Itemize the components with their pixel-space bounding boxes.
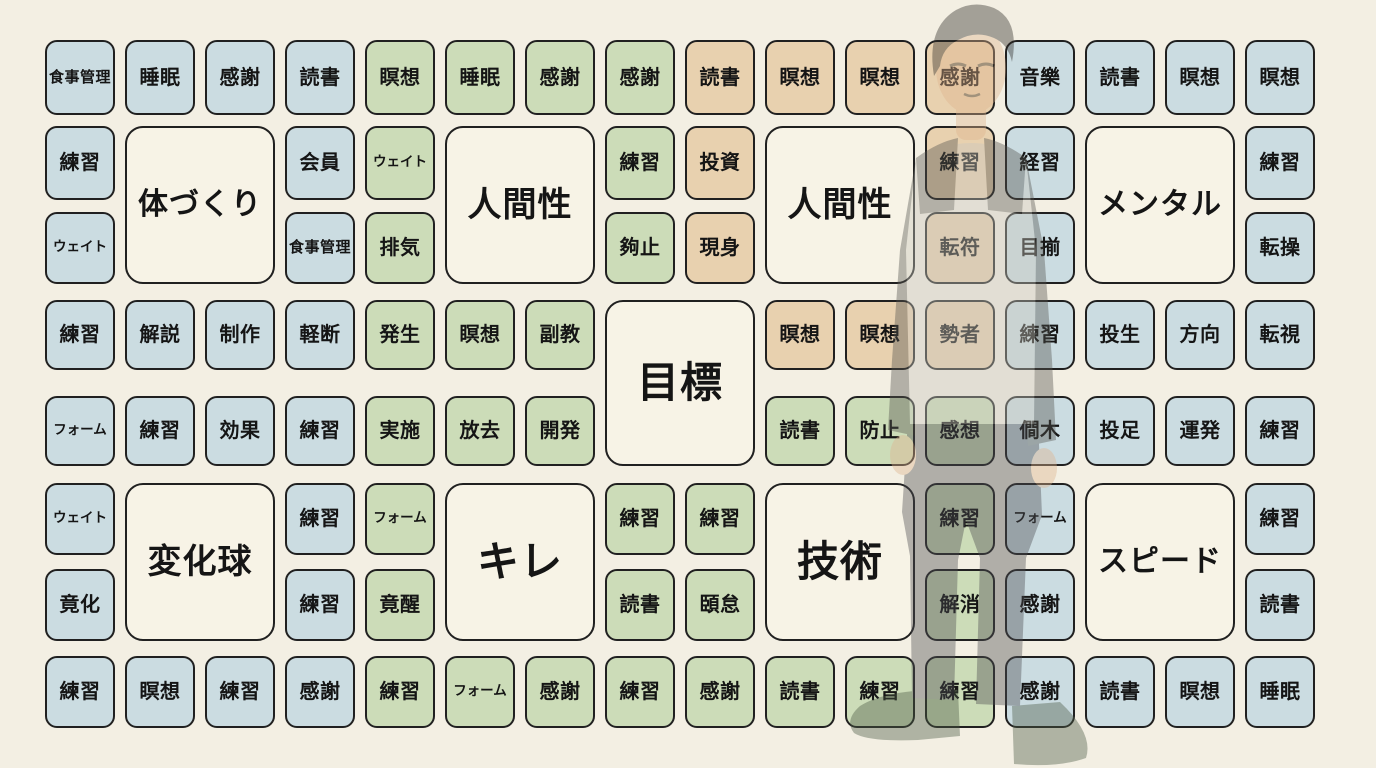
grid-cell: 練習 <box>205 656 275 728</box>
grid-cell: 読書 <box>765 656 835 728</box>
grid-cell: 発生 <box>365 300 435 370</box>
grid-cell: 睡眠 <box>1245 656 1315 728</box>
grid-cell: 練習 <box>1245 126 1315 200</box>
grid-cell: 方向 <box>1165 300 1235 370</box>
grid-cell: 練習 <box>605 126 675 200</box>
grid-cell: 練習 <box>845 656 915 728</box>
grid-cell: 転視 <box>1245 300 1315 370</box>
grid-cell: フォーム <box>365 483 435 555</box>
theme-cell: スピード <box>1085 483 1235 641</box>
grid-cell: 感謝 <box>925 40 995 115</box>
grid-cell: 読書 <box>1085 40 1155 115</box>
grid-cell: ウェイト <box>365 126 435 200</box>
grid-cell: 睡眠 <box>125 40 195 115</box>
grid-cell: 練習 <box>925 656 995 728</box>
grid-cell: 転符 <box>925 212 995 284</box>
grid-cell: 夠止 <box>605 212 675 284</box>
grid-cell: 食事管理 <box>45 40 115 115</box>
grid-cell: 練習 <box>45 300 115 370</box>
grid-cell: 感想 <box>925 396 995 466</box>
grid-cell: 瞑想 <box>1165 40 1235 115</box>
grid-cell: 解消 <box>925 569 995 641</box>
grid-cell: 投生 <box>1085 300 1155 370</box>
theme-cell: 人間性 <box>445 126 595 284</box>
grid-cell: 練習 <box>285 483 355 555</box>
grid-cell: 感謝 <box>1005 569 1075 641</box>
grid-cell: 練習 <box>605 483 675 555</box>
grid-cell: 練習 <box>45 126 115 200</box>
grid-cell: 音樂 <box>1005 40 1075 115</box>
grid-cell: 感謝 <box>525 656 595 728</box>
grid-cell: 瞑想 <box>1245 40 1315 115</box>
theme-cell: 変化球 <box>125 483 275 641</box>
theme-cell: メンタル <box>1085 126 1235 284</box>
grid-cell: 練習 <box>285 569 355 641</box>
grid-cell: 練習 <box>1245 396 1315 466</box>
grid-cell: 竟化 <box>45 569 115 641</box>
grid-cell: フォーム <box>45 396 115 466</box>
grid-cell: 運発 <box>1165 396 1235 466</box>
grid-cell: 効果 <box>205 396 275 466</box>
grid-cell: 瞑想 <box>1165 656 1235 728</box>
grid-cell: 練習 <box>1005 300 1075 370</box>
standing-man-illustration <box>808 0 1108 768</box>
grid-cell: 瞑想 <box>765 300 835 370</box>
grid-cell: 瞑想 <box>845 40 915 115</box>
grid-cell: 投資 <box>685 126 755 200</box>
grid-cell: 読書 <box>1085 656 1155 728</box>
grid-cell: 竟醒 <box>365 569 435 641</box>
grid-cell: 感謝 <box>205 40 275 115</box>
grid-cell: ウェイト <box>45 483 115 555</box>
grid-cell: 現身 <box>685 212 755 284</box>
theme-cell: 人間性 <box>765 126 915 284</box>
grid-cell: 投足 <box>1085 396 1155 466</box>
grid-cell: 練習 <box>125 396 195 466</box>
grid-cell: 練習 <box>925 126 995 200</box>
grid-cell: フォーム <box>445 656 515 728</box>
grid-cell: 会員 <box>285 126 355 200</box>
grid-cell: 開発 <box>525 396 595 466</box>
grid-cell: 睡眠 <box>445 40 515 115</box>
grid-cell: 目揃 <box>1005 212 1075 284</box>
grid-cell: 感謝 <box>605 40 675 115</box>
grid-cell: 練習 <box>1245 483 1315 555</box>
grid-cell: 感謝 <box>525 40 595 115</box>
theme-cell: 技術 <box>765 483 915 641</box>
grid-cell: 防止 <box>845 396 915 466</box>
grid-cell: フォーム <box>1005 483 1075 555</box>
grid-cell: 僴木 <box>1005 396 1075 466</box>
grid-cell: 読書 <box>1245 569 1315 641</box>
grid-cell: 練習 <box>685 483 755 555</box>
grid-cell: 瞑想 <box>365 40 435 115</box>
theme-cell: キレ <box>445 483 595 641</box>
grid-cell: 練習 <box>365 656 435 728</box>
grid-cell: 練習 <box>45 656 115 728</box>
mandala-chart: 食事管理睡眠感謝読書瞑想睡眠感謝感謝読書瞑想瞑想感謝音樂読書瞑想瞑想練習会員ウェ… <box>0 0 1376 768</box>
grid-cell: 練習 <box>605 656 675 728</box>
grid-cell: 瞑想 <box>445 300 515 370</box>
theme-cell: 体づくり <box>125 126 275 284</box>
grid-cell: 感謝 <box>285 656 355 728</box>
grid-cell: 頣怠 <box>685 569 755 641</box>
grid-cell: 勢者 <box>925 300 995 370</box>
grid-cell: 解説 <box>125 300 195 370</box>
grid-cell: 転操 <box>1245 212 1315 284</box>
grid-cell: 感謝 <box>685 656 755 728</box>
grid-cell: 瞑想 <box>765 40 835 115</box>
grid-cell: 制作 <box>205 300 275 370</box>
grid-cell: 読書 <box>685 40 755 115</box>
grid-cell: 経習 <box>1005 126 1075 200</box>
grid-cell: 練習 <box>285 396 355 466</box>
grid-cell: 練習 <box>925 483 995 555</box>
grid-cell: 瞑想 <box>845 300 915 370</box>
grid-cell: 読書 <box>605 569 675 641</box>
grid-cell: 排気 <box>365 212 435 284</box>
grid-cell: 読書 <box>765 396 835 466</box>
grid-cell: 瞑想 <box>125 656 195 728</box>
grid-cell: 食事管理 <box>285 212 355 284</box>
grid-cell: 放去 <box>445 396 515 466</box>
theme-cell: 目標 <box>605 300 755 466</box>
grid-cell: 副教 <box>525 300 595 370</box>
grid-cell: ウェイト <box>45 212 115 284</box>
grid-cell: 軽断 <box>285 300 355 370</box>
grid-cell: 感謝 <box>1005 656 1075 728</box>
grid-cell: 読書 <box>285 40 355 115</box>
grid-cell: 実施 <box>365 396 435 466</box>
